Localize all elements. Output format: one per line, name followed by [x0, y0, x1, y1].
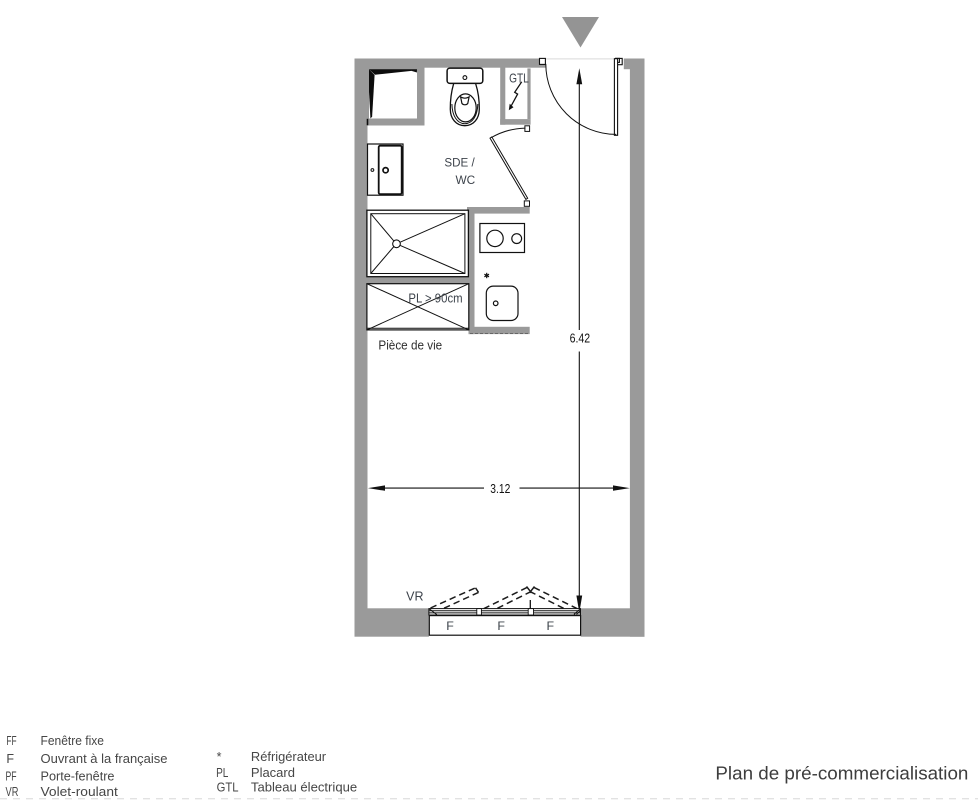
- svg-text:Placard: Placard: [251, 766, 295, 780]
- svg-text:Plan de pré-commercialisation: Plan de pré-commercialisation: [715, 764, 968, 784]
- svg-text:Pièce de vie: Pièce de vie: [378, 338, 442, 353]
- svg-text:Ouvrant à la française: Ouvrant à la française: [41, 752, 168, 766]
- svg-text:3.12: 3.12: [490, 481, 510, 496]
- svg-text:PL > 90cm: PL > 90cm: [408, 291, 462, 306]
- svg-text:F: F: [446, 619, 454, 633]
- svg-text:VR: VR: [6, 785, 19, 799]
- svg-text:VR: VR: [406, 588, 423, 603]
- svg-text:*: *: [217, 750, 222, 764]
- svg-text:Tableau électrique: Tableau électrique: [251, 780, 357, 794]
- svg-text:GTL: GTL: [217, 780, 239, 794]
- svg-text:F: F: [6, 752, 14, 766]
- svg-text:6.42: 6.42: [570, 331, 591, 346]
- svg-text:PF: PF: [6, 769, 17, 783]
- svg-text:F: F: [547, 619, 555, 633]
- svg-text:Porte-fenêtre: Porte-fenêtre: [41, 769, 115, 783]
- svg-text:PL: PL: [216, 766, 228, 780]
- svg-text:Fenêtre fixe: Fenêtre fixe: [41, 734, 105, 748]
- svg-text:Volet-roulant: Volet-roulant: [41, 785, 119, 799]
- svg-text:F: F: [497, 619, 505, 633]
- svg-text:WC: WC: [456, 173, 476, 187]
- svg-text:GTL: GTL: [509, 70, 529, 85]
- svg-text:Réfrigérateur: Réfrigérateur: [251, 750, 326, 764]
- svg-text:FF: FF: [6, 734, 16, 748]
- svg-text:SDE /: SDE /: [444, 155, 475, 169]
